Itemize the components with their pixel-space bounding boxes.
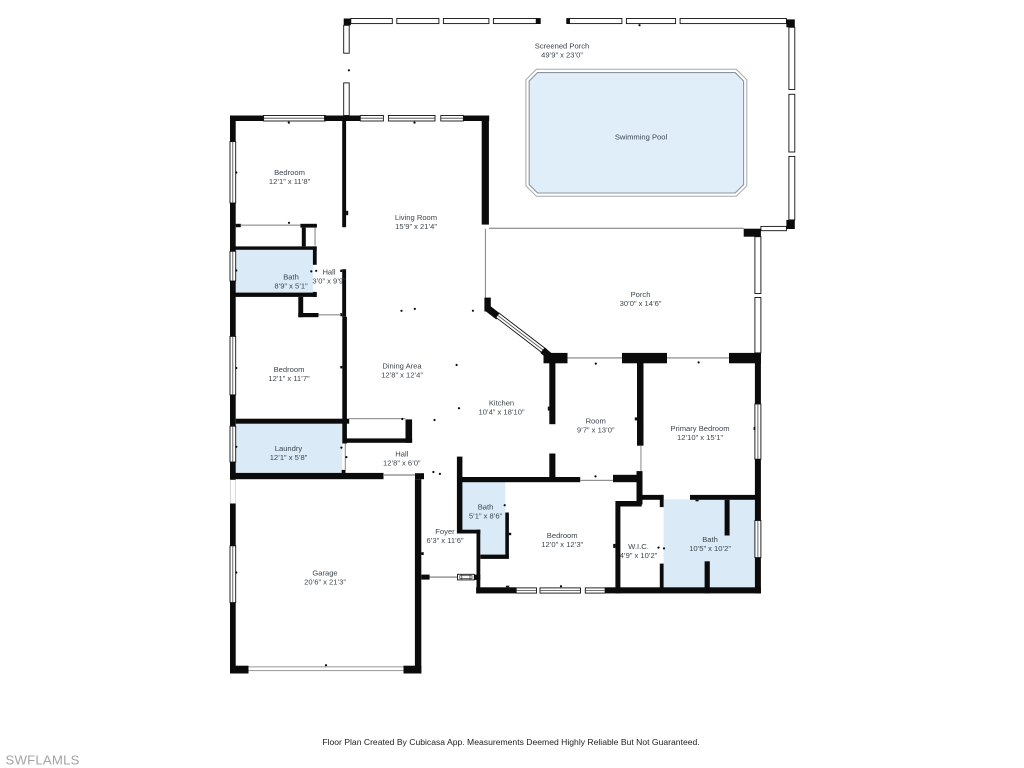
svg-text:12’1” x 5’8”: 12’1” x 5’8” bbox=[270, 453, 308, 462]
svg-text:5’1” x 8’6”: 5’1” x 8’6” bbox=[469, 511, 503, 520]
svg-text:Bath: Bath bbox=[702, 535, 718, 544]
svg-text:Porch: Porch bbox=[631, 290, 651, 299]
svg-text:Living Room: Living Room bbox=[395, 213, 437, 222]
svg-text:Foyer: Foyer bbox=[435, 527, 455, 536]
svg-text:3’0” x 9’9”: 3’0” x 9’9” bbox=[312, 276, 346, 285]
svg-text:12’0” x 12’3”: 12’0” x 12’3” bbox=[541, 540, 583, 549]
svg-text:W.I.C.: W.I.C. bbox=[628, 542, 649, 551]
svg-text:Floor Plan Created By Cubicasa: Floor Plan Created By Cubicasa App. Meas… bbox=[322, 737, 699, 747]
svg-text:30’0” x 14’6”: 30’0” x 14’6” bbox=[620, 299, 662, 308]
svg-text:Bedroom: Bedroom bbox=[274, 365, 305, 374]
svg-text:8’9” x 5’1”: 8’9” x 5’1” bbox=[274, 281, 308, 290]
svg-text:Dining Area: Dining Area bbox=[382, 361, 422, 370]
svg-text:10’5” x 10’2”: 10’5” x 10’2” bbox=[689, 544, 731, 553]
svg-text:4’9” x 10’2”: 4’9” x 10’2” bbox=[620, 551, 658, 560]
svg-text:Bedroom: Bedroom bbox=[274, 168, 305, 177]
svg-text:Garage: Garage bbox=[312, 568, 337, 577]
svg-text:Room: Room bbox=[586, 416, 606, 425]
svg-text:12’8” x 12’4”: 12’8” x 12’4” bbox=[381, 370, 423, 379]
svg-text:12’10” x 15’1”: 12’10” x 15’1” bbox=[677, 433, 723, 442]
svg-text:SWFLAMLS: SWFLAMLS bbox=[6, 753, 80, 768]
svg-text:Bath: Bath bbox=[478, 502, 494, 511]
svg-text:Kitchen: Kitchen bbox=[489, 398, 514, 407]
svg-text:9’7” x 13’0”: 9’7” x 13’0” bbox=[577, 425, 615, 434]
svg-text:20’6” x 21’3”: 20’6” x 21’3” bbox=[304, 577, 346, 586]
svg-text:10’4” x 18’10”: 10’4” x 18’10” bbox=[478, 407, 524, 416]
svg-text:Bedroom: Bedroom bbox=[547, 531, 578, 540]
svg-text:49’9” x 23’0”: 49’9” x 23’0” bbox=[541, 50, 583, 59]
svg-text:6’3” x 11’6”: 6’3” x 11’6” bbox=[426, 536, 463, 545]
svg-text:Hall: Hall bbox=[322, 267, 335, 276]
svg-text:Hall: Hall bbox=[395, 449, 408, 458]
svg-text:15’9” x 21’4”: 15’9” x 21’4” bbox=[395, 222, 437, 231]
svg-text:12’1” x 11’8”: 12’1” x 11’8” bbox=[269, 177, 311, 186]
svg-text:Primary Bedroom: Primary Bedroom bbox=[670, 424, 729, 433]
svg-text:12’8” x 6’0”: 12’8” x 6’0” bbox=[383, 458, 421, 467]
svg-text:Screened Porch: Screened Porch bbox=[535, 41, 589, 50]
svg-text:Bath: Bath bbox=[283, 272, 299, 281]
svg-text:Laundry: Laundry bbox=[275, 444, 303, 453]
svg-text:12’1” x 11’7”: 12’1” x 11’7” bbox=[268, 374, 310, 383]
svg-text:Swimming Pool: Swimming Pool bbox=[615, 132, 668, 141]
